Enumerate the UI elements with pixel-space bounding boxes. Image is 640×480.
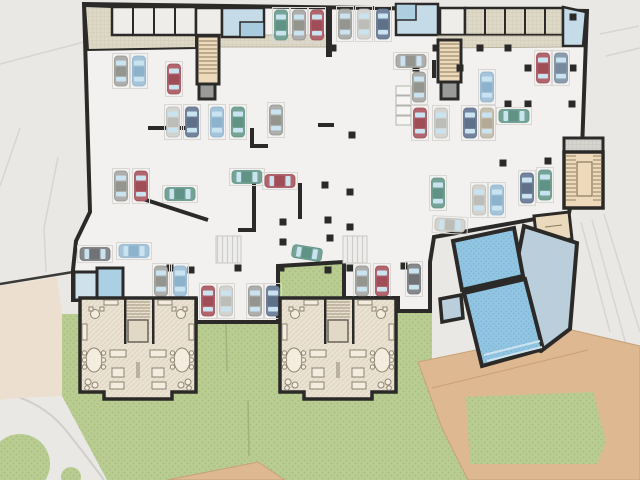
furniture	[301, 365, 305, 369]
car-rear-window	[134, 77, 144, 82]
wall	[298, 183, 302, 219]
car-rear-window	[312, 31, 322, 36]
column	[349, 132, 356, 139]
furniture	[101, 351, 105, 355]
furniture	[370, 365, 374, 369]
furniture	[100, 307, 104, 311]
locker	[396, 86, 411, 95]
furniture	[282, 324, 287, 340]
car-windshield	[436, 113, 446, 118]
car-rear-window	[276, 31, 286, 36]
furniture	[370, 351, 374, 355]
storage-rooms	[196, 8, 222, 35]
car-rear-window	[124, 246, 129, 256]
car-rear-window	[116, 77, 126, 82]
car-rear-window	[168, 128, 178, 133]
furniture	[152, 368, 164, 377]
car	[133, 169, 150, 204]
furniture	[358, 300, 372, 305]
car-windshield	[253, 172, 258, 182]
car-windshield	[294, 15, 304, 20]
sidewalk-beige	[0, 277, 62, 400]
furniture	[170, 351, 174, 355]
column	[457, 65, 464, 72]
car-rear-window	[233, 128, 243, 133]
furniture	[150, 350, 166, 357]
car-roof	[474, 196, 485, 206]
car-windshield	[101, 249, 106, 259]
car-windshield	[169, 69, 179, 74]
car-windshield	[186, 189, 191, 199]
furniture	[385, 379, 391, 385]
car	[273, 8, 290, 43]
furniture	[92, 382, 98, 388]
furniture	[85, 379, 91, 385]
storage-rooms-hatched	[465, 8, 563, 35]
car-rear-window	[212, 128, 222, 133]
car	[263, 173, 298, 190]
car-windshield	[520, 111, 525, 121]
furniture	[82, 365, 86, 369]
car	[247, 284, 264, 319]
car	[230, 105, 247, 140]
car-windshield	[221, 291, 231, 296]
furniture	[183, 307, 187, 311]
car-windshield	[538, 58, 548, 63]
car-roof	[242, 172, 252, 183]
furniture	[389, 365, 393, 369]
car-roof	[175, 189, 185, 200]
furniture	[170, 358, 174, 362]
elevator	[199, 84, 215, 99]
car	[184, 105, 201, 140]
car-roof	[522, 184, 533, 194]
car-roof	[340, 20, 351, 30]
car-roof	[301, 247, 312, 259]
car	[113, 54, 130, 89]
car-windshield	[377, 271, 387, 276]
car	[430, 176, 447, 211]
car-rear-window	[237, 172, 242, 182]
car	[374, 264, 391, 299]
car-rear-window	[136, 192, 146, 197]
car-windshield	[357, 271, 367, 276]
column	[505, 45, 512, 52]
furniture	[289, 307, 293, 311]
car-roof	[116, 67, 127, 77]
car-rear-window	[409, 285, 419, 290]
column	[325, 267, 332, 274]
car	[166, 62, 183, 97]
car-windshield	[340, 14, 350, 19]
car	[497, 108, 532, 125]
furniture	[304, 300, 318, 305]
car-roof	[250, 297, 261, 307]
car-roof	[406, 56, 416, 67]
car-rear-window	[187, 128, 197, 133]
furniture	[187, 386, 192, 391]
car-roof	[540, 181, 551, 191]
car-roof	[415, 119, 426, 129]
car-roof	[168, 118, 179, 128]
column	[235, 265, 242, 272]
furniture	[389, 324, 394, 340]
furniture	[282, 365, 286, 369]
car	[209, 105, 226, 140]
car-rear-window	[474, 206, 484, 211]
floor-plan	[0, 0, 640, 480]
car-windshield	[203, 291, 213, 296]
room-blue	[97, 268, 123, 300]
car-rear-window	[270, 176, 275, 186]
car-windshield	[233, 112, 243, 117]
car-roof	[294, 21, 305, 31]
car-rear-window	[116, 192, 126, 197]
car	[412, 106, 429, 141]
car	[479, 70, 496, 105]
column	[347, 265, 354, 272]
furniture	[189, 351, 193, 355]
car-windshield	[187, 112, 197, 117]
car-windshield	[271, 110, 281, 115]
furniture	[172, 307, 176, 311]
car-roof	[169, 75, 180, 85]
car-roof	[90, 249, 100, 260]
car	[163, 186, 198, 203]
car-roof	[275, 176, 285, 187]
car-roof	[482, 83, 493, 93]
furniture	[312, 368, 324, 377]
furniture	[350, 350, 366, 357]
furniture	[352, 382, 366, 389]
elevator	[128, 320, 148, 342]
column	[477, 45, 484, 52]
car	[462, 106, 479, 141]
car-rear-window	[504, 111, 509, 121]
car-rear-window	[175, 287, 185, 292]
car-rear-window	[401, 56, 406, 66]
car-rear-window	[415, 129, 425, 134]
furniture	[285, 379, 291, 385]
car	[200, 284, 217, 319]
furniture	[178, 382, 184, 388]
column	[347, 224, 354, 231]
car-rear-window	[540, 191, 550, 196]
car-roof	[221, 297, 232, 307]
car	[230, 169, 265, 186]
furniture	[189, 324, 194, 340]
furniture	[104, 300, 118, 305]
car-windshield	[268, 291, 278, 296]
car-windshield	[415, 113, 425, 118]
car-roof	[509, 111, 519, 122]
car-rear-window	[436, 129, 446, 134]
car-roof	[136, 182, 147, 192]
column	[433, 45, 440, 52]
car	[131, 54, 148, 89]
furniture	[310, 350, 326, 357]
column	[401, 263, 408, 270]
car-windshield	[414, 77, 424, 82]
car-rear-window	[492, 206, 502, 211]
furniture	[170, 365, 174, 369]
furniture	[370, 358, 374, 362]
car-rear-window	[294, 31, 304, 36]
column	[545, 158, 552, 165]
car-roof	[556, 64, 567, 74]
car-rear-window	[465, 129, 475, 134]
furniture	[292, 382, 298, 388]
furniture	[383, 307, 387, 311]
car	[394, 53, 429, 70]
furniture	[101, 365, 105, 369]
furniture	[372, 307, 376, 311]
car-windshield	[474, 190, 484, 195]
car-windshield	[359, 14, 369, 19]
column	[525, 65, 532, 72]
furniture	[378, 382, 384, 388]
column	[570, 14, 577, 21]
furniture	[89, 307, 93, 311]
elevator	[328, 320, 348, 342]
car-rear-window	[378, 30, 388, 35]
car-rear-window	[221, 307, 231, 312]
car-windshield	[482, 113, 492, 118]
car-roof	[465, 119, 476, 129]
car-rear-window	[271, 126, 281, 131]
car	[153, 264, 170, 299]
car-windshield	[136, 176, 146, 181]
column	[525, 101, 532, 108]
furniture	[389, 351, 393, 355]
car-roof	[482, 119, 493, 129]
furniture	[185, 379, 191, 385]
column	[569, 101, 576, 108]
car-windshield	[492, 190, 502, 195]
furniture	[374, 348, 390, 372]
hedge-line	[226, 324, 227, 372]
furniture	[387, 386, 392, 391]
car-rear-window	[359, 30, 369, 35]
furniture	[389, 358, 393, 362]
car-windshield	[409, 269, 419, 274]
car	[117, 243, 152, 260]
car-windshield	[175, 271, 185, 276]
furniture	[286, 348, 302, 372]
car-windshield	[276, 15, 286, 20]
car-roof	[203, 297, 214, 307]
furniture	[301, 358, 305, 362]
car-windshield	[134, 61, 144, 66]
wall	[318, 123, 334, 127]
car-windshield	[116, 61, 126, 66]
room-blue	[74, 272, 97, 300]
furniture	[189, 365, 193, 369]
apartment-unit	[80, 298, 196, 399]
car-windshield	[417, 56, 422, 66]
car	[553, 51, 570, 86]
car	[268, 103, 285, 138]
car-rear-window	[169, 85, 179, 90]
car-roof	[436, 119, 447, 129]
column	[505, 101, 512, 108]
car-windshield	[286, 176, 291, 186]
furniture	[112, 368, 124, 377]
car	[406, 262, 423, 297]
furniture	[86, 348, 102, 372]
furniture	[300, 307, 304, 311]
furniture	[189, 358, 193, 362]
furniture	[110, 350, 126, 357]
car	[375, 7, 392, 42]
column	[327, 235, 334, 242]
car-roof	[233, 118, 244, 128]
car-rear-window	[203, 307, 213, 312]
car-rear-window	[482, 93, 492, 98]
car-windshield	[312, 15, 322, 20]
wall	[432, 60, 436, 78]
car-rear-window	[482, 129, 492, 134]
wall	[238, 228, 254, 232]
car-rear-window	[357, 287, 367, 292]
car-rear-window	[538, 74, 548, 79]
car-windshield	[140, 246, 145, 256]
column	[280, 239, 287, 246]
car-windshield	[378, 14, 388, 19]
car-rear-window	[433, 199, 443, 204]
car	[78, 246, 113, 263]
car-windshield	[212, 112, 222, 117]
furniture	[82, 351, 86, 355]
wall	[252, 180, 256, 232]
car-roof	[492, 196, 503, 206]
furniture	[285, 386, 290, 391]
car-roof	[268, 297, 279, 307]
car	[519, 171, 536, 206]
furniture	[82, 324, 87, 340]
furniture	[158, 300, 172, 305]
car-rear-window	[250, 307, 260, 312]
car-windshield	[522, 178, 532, 183]
stair-core	[197, 36, 219, 84]
column	[347, 189, 354, 196]
car-windshield	[116, 176, 126, 181]
room-blue-inner	[240, 22, 264, 37]
storage-rooms	[440, 8, 465, 35]
site-plan-svg	[0, 0, 640, 480]
car-windshield	[455, 220, 461, 230]
column	[500, 160, 507, 167]
car	[356, 7, 373, 42]
vestibule	[564, 138, 603, 152]
car-rear-window	[377, 287, 387, 292]
locker	[396, 96, 411, 105]
furniture	[282, 351, 286, 355]
pool-deck-small	[440, 295, 463, 322]
furniture	[152, 382, 166, 389]
car	[489, 183, 506, 218]
car-rear-window	[156, 287, 166, 292]
car	[337, 7, 354, 42]
car-windshield	[156, 271, 166, 276]
car	[411, 70, 428, 105]
ramp	[343, 236, 367, 263]
car-roof	[212, 118, 223, 128]
car-roof	[271, 116, 282, 126]
column	[325, 217, 332, 224]
car	[479, 106, 496, 141]
car	[113, 169, 130, 204]
car-roof	[357, 277, 368, 287]
car-roof	[414, 83, 425, 93]
car	[471, 183, 488, 218]
car-rear-window	[85, 249, 90, 259]
car-roof	[538, 64, 549, 74]
column	[330, 45, 337, 52]
furniture	[282, 358, 286, 362]
car	[433, 106, 450, 141]
apartment-unit	[280, 298, 396, 399]
car-rear-window	[170, 189, 175, 199]
car	[172, 264, 189, 299]
furniture	[174, 348, 190, 372]
furniture	[310, 382, 324, 389]
car-roof	[276, 21, 287, 31]
furniture	[110, 382, 124, 389]
hedge-line	[248, 400, 249, 456]
column	[322, 182, 329, 189]
core-wall	[352, 298, 355, 344]
furniture	[101, 358, 105, 362]
column	[278, 265, 285, 272]
car-windshield	[540, 175, 550, 180]
car-rear-window	[522, 194, 532, 199]
car-rear-window	[556, 74, 566, 79]
car-roof	[116, 182, 127, 192]
column	[280, 219, 287, 226]
room-blue-inner	[396, 4, 416, 20]
car-roof	[134, 67, 145, 77]
car-roof	[445, 219, 455, 230]
car-roof	[156, 277, 167, 287]
car-roof	[409, 275, 420, 285]
locker	[396, 106, 411, 115]
furniture	[352, 368, 364, 377]
car-windshield	[168, 112, 178, 117]
car-roof	[129, 246, 139, 257]
car-roof	[378, 20, 389, 30]
car-rear-window	[439, 219, 444, 229]
car	[537, 168, 554, 203]
car	[354, 264, 371, 299]
car-windshield	[433, 183, 443, 188]
car	[165, 105, 182, 140]
car-roof	[187, 118, 198, 128]
car	[218, 284, 235, 319]
core-wall	[152, 298, 155, 344]
car-windshield	[465, 113, 475, 118]
wall	[250, 144, 268, 148]
ramp	[216, 236, 241, 263]
car-roof	[377, 277, 388, 287]
locker	[396, 116, 411, 125]
car-windshield	[556, 58, 566, 63]
car	[291, 8, 308, 43]
elevator	[441, 82, 458, 99]
room-blue	[563, 7, 586, 46]
car-windshield	[482, 77, 492, 82]
car-roof	[312, 21, 323, 31]
